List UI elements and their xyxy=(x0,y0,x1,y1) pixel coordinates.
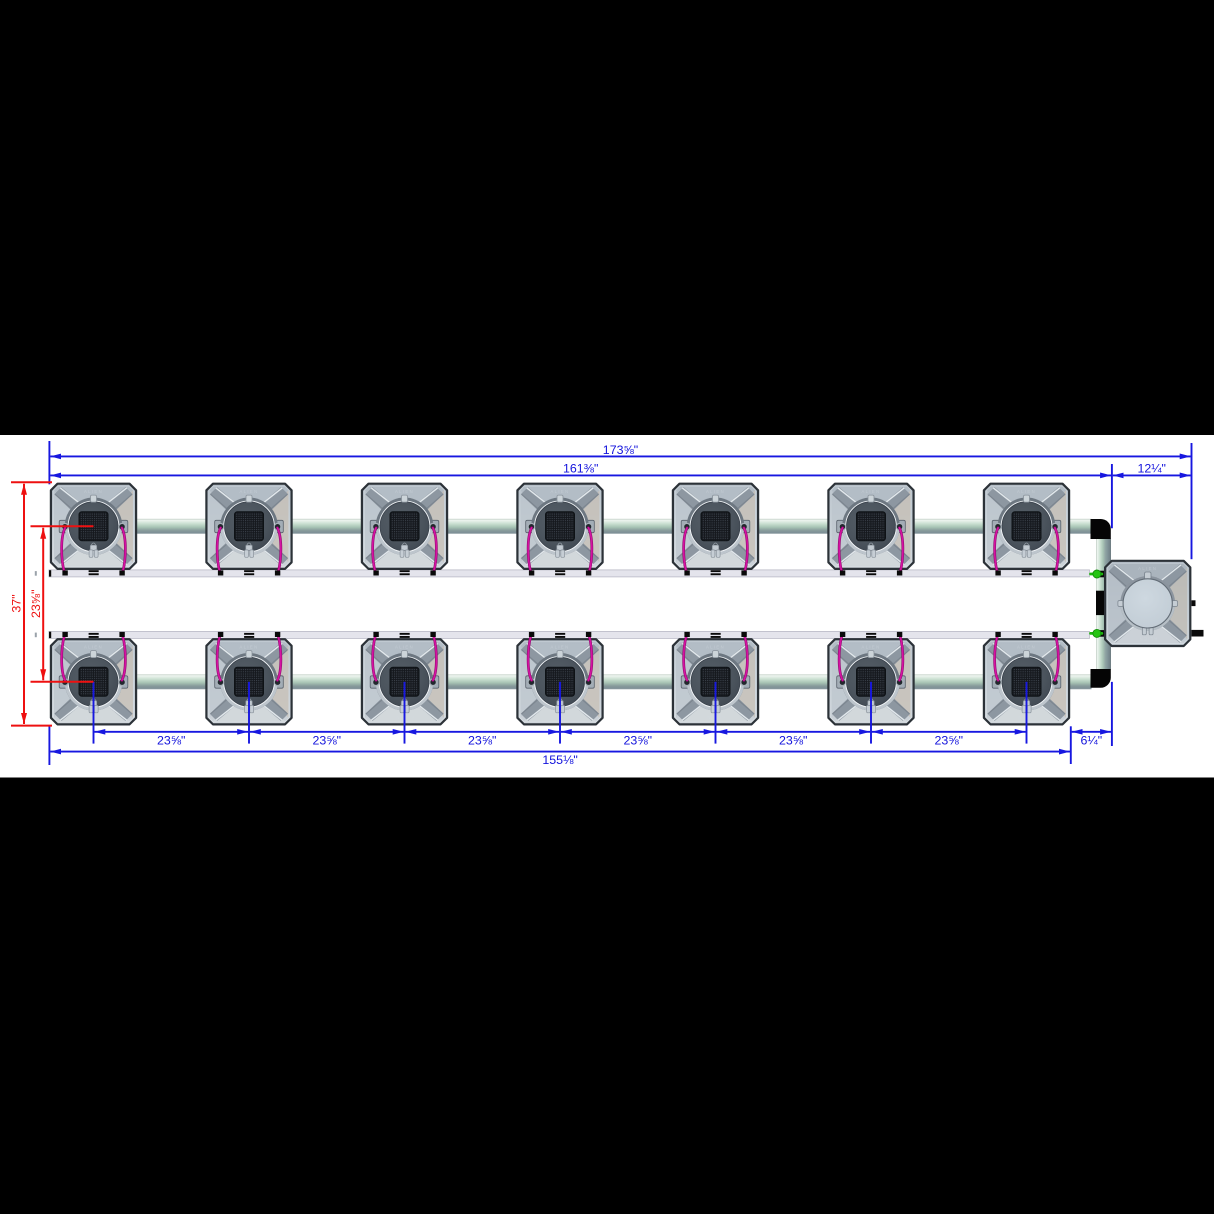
svg-text:23⅝": 23⅝" xyxy=(779,733,808,747)
svg-text:37": 37" xyxy=(10,594,24,612)
svg-text:23⅝": 23⅝" xyxy=(468,733,497,747)
svg-text:23⅝": 23⅝" xyxy=(29,590,43,619)
svg-text:23⅝": 23⅝" xyxy=(313,733,342,747)
svg-text:23⅝": 23⅝" xyxy=(624,733,653,747)
svg-text:23⅝": 23⅝" xyxy=(935,733,964,747)
svg-text:6¼": 6¼" xyxy=(1080,733,1102,747)
svg-text:173⅝": 173⅝" xyxy=(603,443,638,457)
svg-text:155⅛": 155⅛" xyxy=(542,753,577,767)
svg-text:12¼": 12¼" xyxy=(1137,462,1166,476)
svg-text:23⅝": 23⅝" xyxy=(157,733,186,747)
svg-text:161⅜": 161⅜" xyxy=(563,462,598,476)
